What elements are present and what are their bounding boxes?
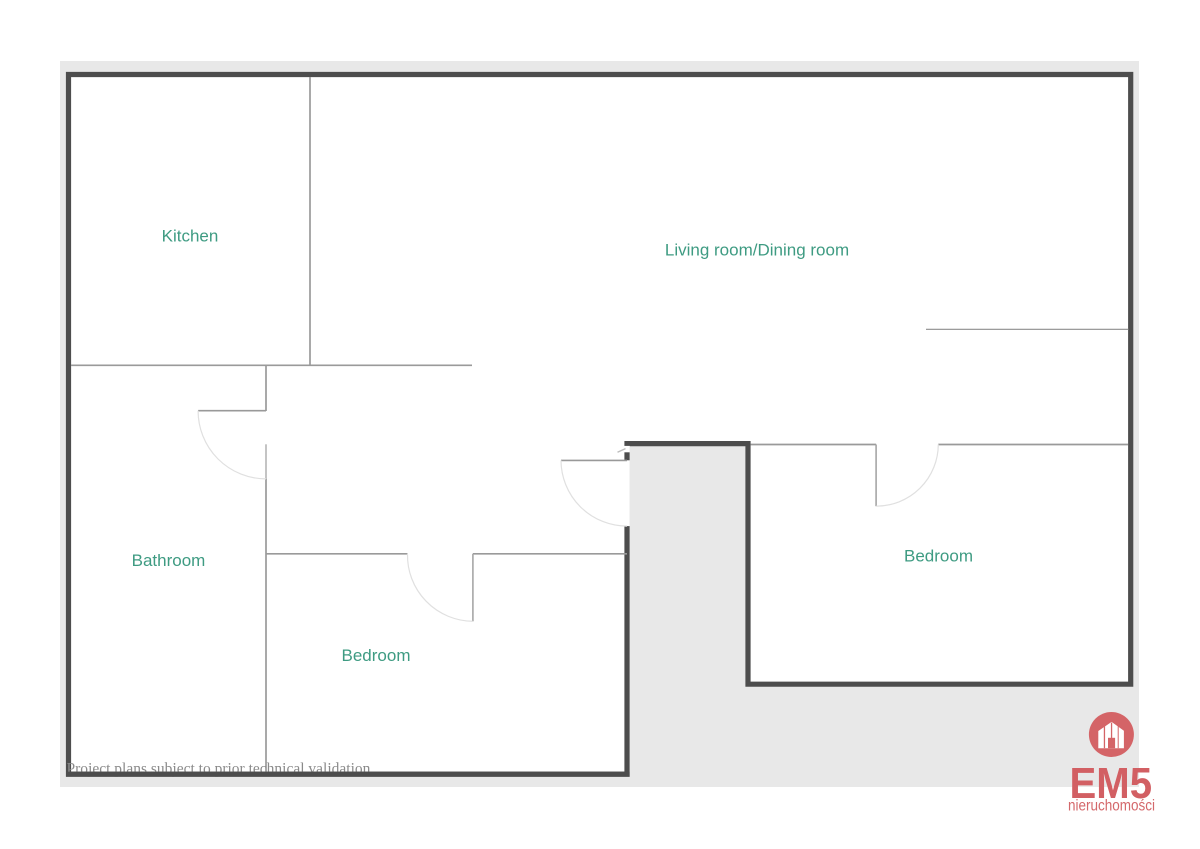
svg-text:Kitchen: Kitchen	[162, 227, 219, 246]
svg-text:Living room/Dining room: Living room/Dining room	[665, 240, 849, 259]
svg-text:Bathroom: Bathroom	[132, 551, 206, 570]
svg-text:nieruchomości: nieruchomości	[1068, 798, 1155, 815]
svg-text:Bedroom: Bedroom	[904, 546, 973, 565]
svg-text:Bedroom: Bedroom	[342, 646, 411, 665]
